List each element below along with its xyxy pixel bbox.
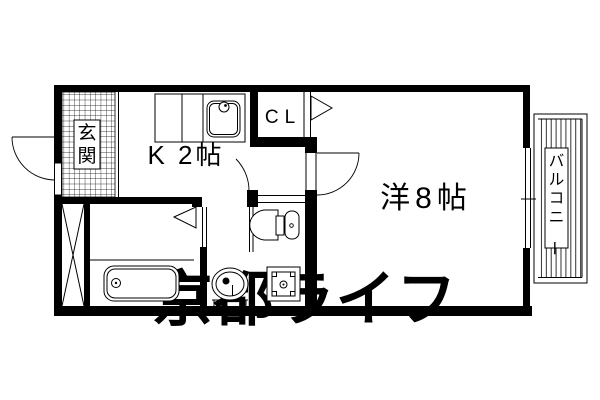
toilet — [250, 210, 299, 240]
faucet-icon — [219, 102, 229, 112]
bathtub — [104, 266, 179, 301]
kitchen-label: K 2帖 — [147, 140, 224, 170]
closet-label: CL — [265, 107, 301, 128]
toilet-tank — [285, 211, 299, 239]
washing-machine-pan — [267, 267, 300, 301]
western-room-label: 洋8帖 — [380, 182, 472, 215]
floor-plan-image: 京都ライフ — [0, 0, 600, 400]
kitchen-counter — [155, 94, 245, 142]
floor-plan: 京都ライフ — [0, 0, 600, 400]
faucet-icon — [223, 278, 230, 285]
